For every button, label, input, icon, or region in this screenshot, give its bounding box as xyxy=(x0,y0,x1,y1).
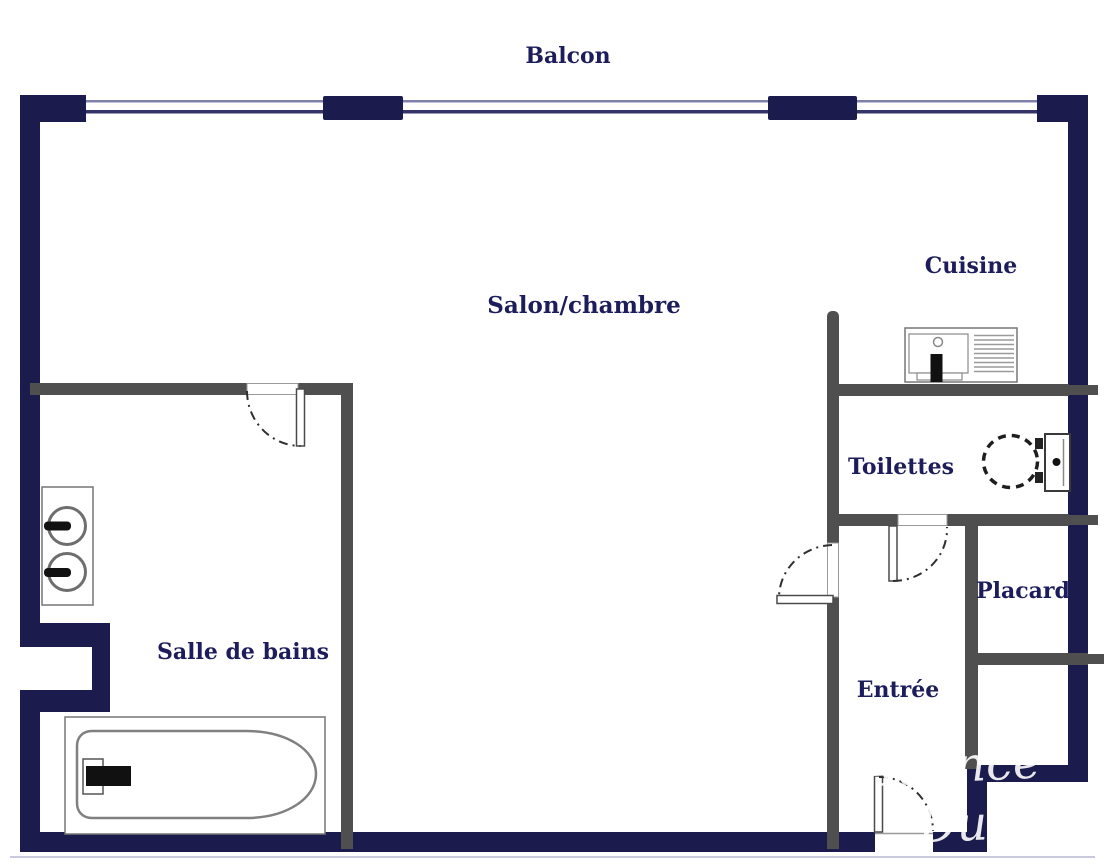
label-entree: Entrée xyxy=(857,677,940,703)
toilet-bowl-icon xyxy=(984,436,1038,488)
salon-door-leaf xyxy=(777,596,833,604)
toilet-hinge-bottom-icon xyxy=(1035,472,1043,483)
toilettes-door-arc xyxy=(893,527,947,581)
wall-window-pier-1 xyxy=(323,96,403,120)
wall-kitchen-toilettes-divider xyxy=(833,384,1069,396)
toilettes-door-leaf xyxy=(889,526,897,581)
scan-artifact-line xyxy=(10,856,1095,858)
salon-door-arc xyxy=(779,545,832,599)
balcony-window-wall xyxy=(40,100,1088,114)
wall-entree-placard-divider xyxy=(965,514,978,769)
toilet-flush-dot-icon xyxy=(1053,458,1061,466)
floor-plan: Balcon Salon/chambre Cuisine Toilettes P… xyxy=(0,0,1110,864)
wall-toilettes-bottom-left xyxy=(833,514,898,526)
watermark-line2: Dupleix xyxy=(916,789,1106,855)
opening-toilettes xyxy=(898,515,947,526)
bathroom-door-arc xyxy=(247,391,301,446)
wall-placard-shelf xyxy=(965,653,1088,665)
toilet-hinge-top-icon xyxy=(1035,438,1043,449)
sink-faucet-bottom-icon xyxy=(44,568,71,577)
opening-bathroom xyxy=(247,384,298,395)
kitchen-fixtures xyxy=(905,328,1017,382)
wall-bottom xyxy=(20,832,875,852)
floor-plan-svg: Balcon Salon/chambre Cuisine Toilettes P… xyxy=(0,0,1110,864)
watermark-line1: Agence xyxy=(856,733,1043,799)
stove-handle-icon xyxy=(931,354,943,382)
bathroom-door-leaf xyxy=(297,389,305,446)
wall-bathroom-top-left xyxy=(30,383,247,395)
opening-salon xyxy=(828,543,839,597)
wall-stub-2 xyxy=(1069,515,1098,525)
wall-left-lower xyxy=(20,690,40,852)
window-line-top xyxy=(40,100,1088,103)
label-balcon: Balcon xyxy=(525,43,610,69)
toilet-fixture xyxy=(984,434,1071,491)
wall-stub-1 xyxy=(1069,385,1098,395)
bathtub-faucet-icon xyxy=(86,766,131,786)
label-salle-de-bains: Salle de bains xyxy=(157,639,329,665)
wall-kitchen-lower xyxy=(827,597,839,849)
label-cuisine: Cuisine xyxy=(925,253,1018,279)
stove-knob-icon xyxy=(934,338,943,347)
label-placard: Placard xyxy=(976,578,1070,604)
label-toilettes: Toilettes xyxy=(848,454,954,480)
wall-kitchen-upper xyxy=(827,318,839,543)
label-salon-chambre: Salon/chambre xyxy=(487,292,681,319)
sink-faucet-top-icon xyxy=(44,522,71,531)
wall-window-pier-2 xyxy=(768,96,857,120)
window-line-bottom xyxy=(40,110,1088,114)
wall-stub-3 xyxy=(1088,654,1104,664)
wall-bathroom-right xyxy=(341,383,353,849)
wall-left-upper xyxy=(20,95,40,647)
